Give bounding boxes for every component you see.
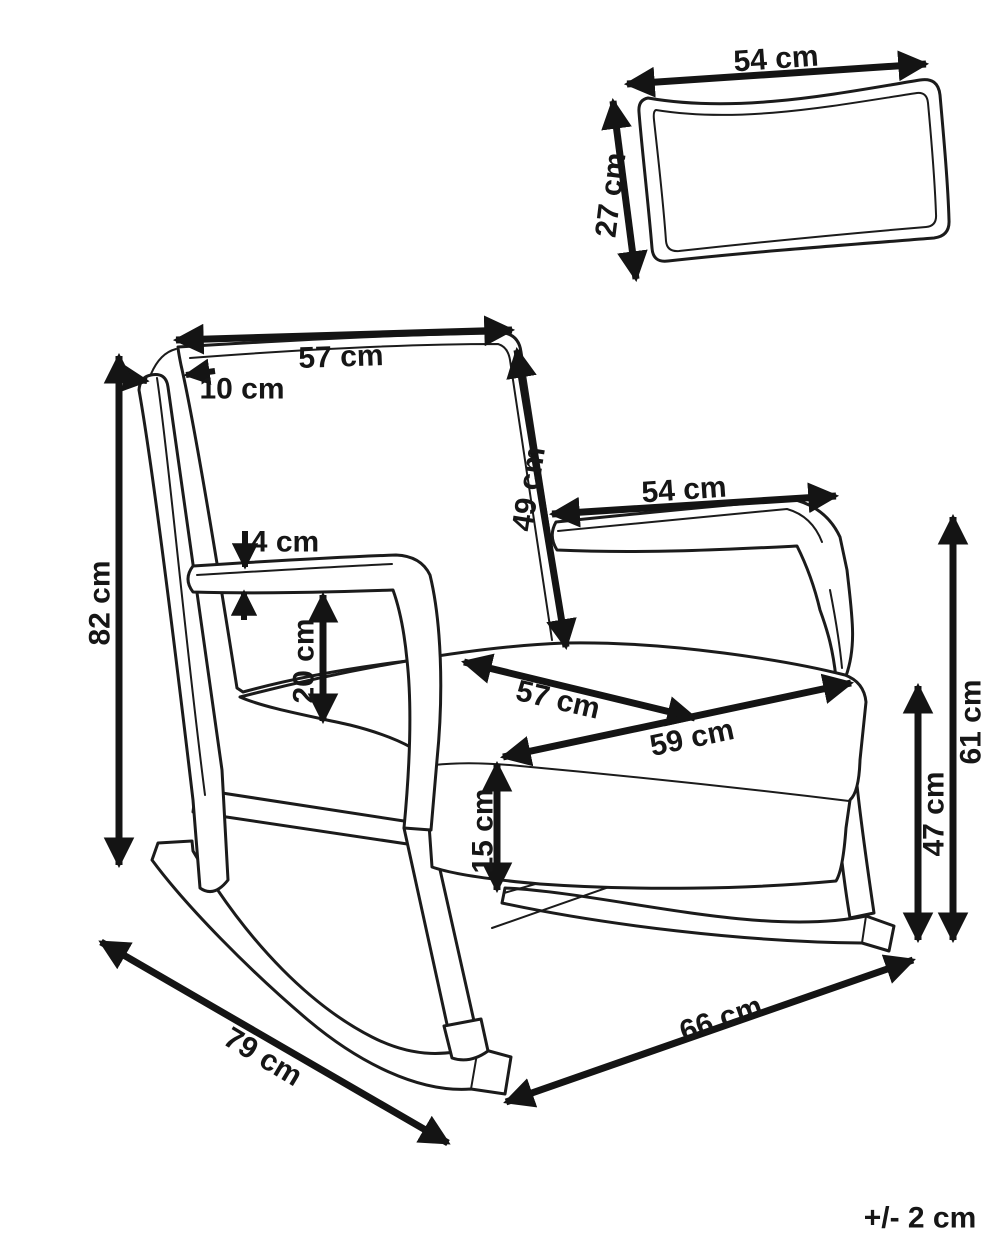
pillow-inner-outline (654, 93, 936, 251)
pillow-drawing (639, 80, 949, 262)
dimension-label-tolerance-note: +/- 2 cm (864, 1202, 977, 1235)
backrest-corner-curve (151, 349, 176, 374)
dimension-label-overall-width: 66 cm (675, 990, 766, 1049)
dimension-label-armrest-to-seat: 20 cm (288, 618, 321, 703)
dimension-label-headrest-post-width: 10 cm (199, 373, 284, 406)
dimension-label-overall-depth: 79 cm (218, 1021, 308, 1093)
pillow-outer-outline (639, 80, 949, 262)
diagram-canvas: 54 cm27 cm57 cm10 cm49 cm54 cm82 cm4 cm2… (0, 0, 1000, 1250)
dimension-label-armrest-height: 61 cm (955, 679, 988, 764)
dimension-label-armrest-thickness: 4 cm (251, 526, 319, 559)
dimension-label-armrest-length: 54 cm (640, 471, 727, 510)
left-front-leg-foot (444, 1019, 488, 1060)
dimension-label-backrest-width: 57 cm (298, 339, 384, 375)
arrow-post-width-left (121, 378, 147, 381)
right-rocker (502, 888, 894, 951)
dimension-diagram: 54 cm27 cm57 cm10 cm49 cm54 cm82 cm4 cm2… (0, 0, 1000, 1250)
dimension-label-pillow-width: 54 cm (732, 40, 819, 79)
seat-cushion (240, 643, 866, 888)
rocking-chair-drawing (139, 333, 894, 1094)
dimension-label-overall-height: 82 cm (84, 560, 117, 645)
dimension-label-seat-height: 47 cm (918, 771, 951, 856)
dimension-label-cushion-thickness: 15 cm (467, 788, 500, 873)
